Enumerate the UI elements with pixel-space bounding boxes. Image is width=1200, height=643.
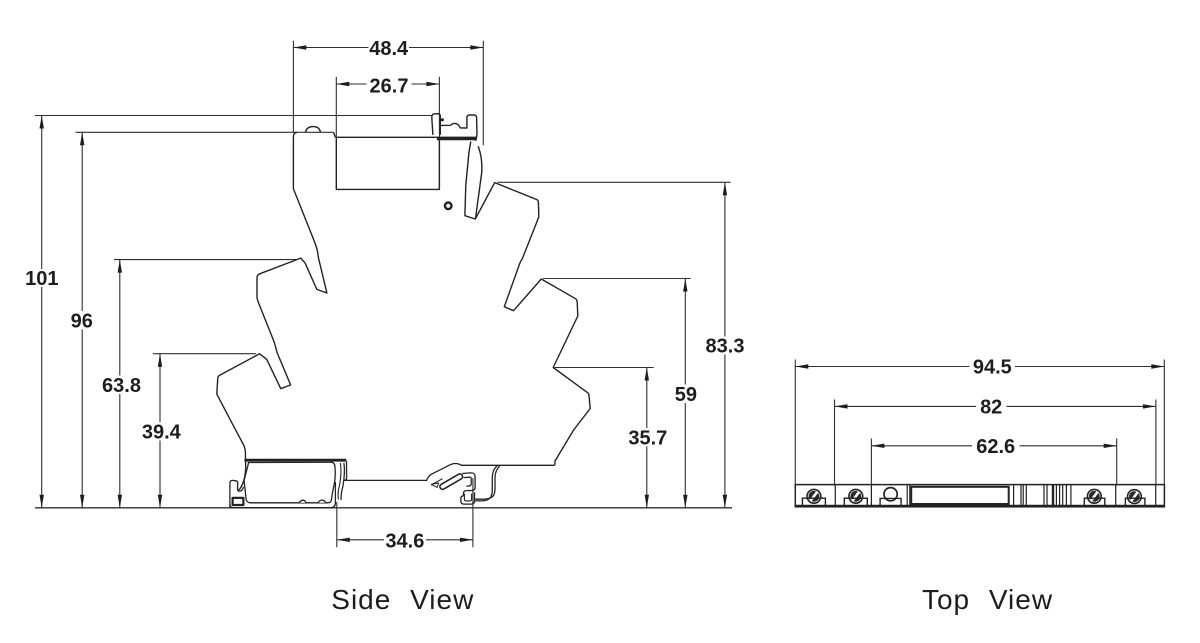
svg-text:Side View: Side View — [331, 584, 474, 615]
svg-text:Top View: Top View — [922, 584, 1053, 615]
svg-text:48.4: 48.4 — [369, 38, 409, 60]
svg-text:35.7: 35.7 — [628, 428, 667, 450]
svg-text:101: 101 — [25, 268, 58, 290]
svg-text:63.8: 63.8 — [102, 375, 141, 397]
svg-text:96: 96 — [71, 311, 93, 333]
svg-text:94.5: 94.5 — [973, 357, 1012, 379]
svg-text:59: 59 — [675, 384, 697, 406]
svg-text:62.6: 62.6 — [976, 436, 1015, 458]
svg-text:39.4: 39.4 — [142, 421, 182, 443]
svg-text:83.3: 83.3 — [706, 336, 745, 358]
svg-text:26.7: 26.7 — [370, 76, 409, 98]
svg-text:82: 82 — [980, 397, 1002, 419]
svg-text:34.6: 34.6 — [385, 530, 424, 552]
